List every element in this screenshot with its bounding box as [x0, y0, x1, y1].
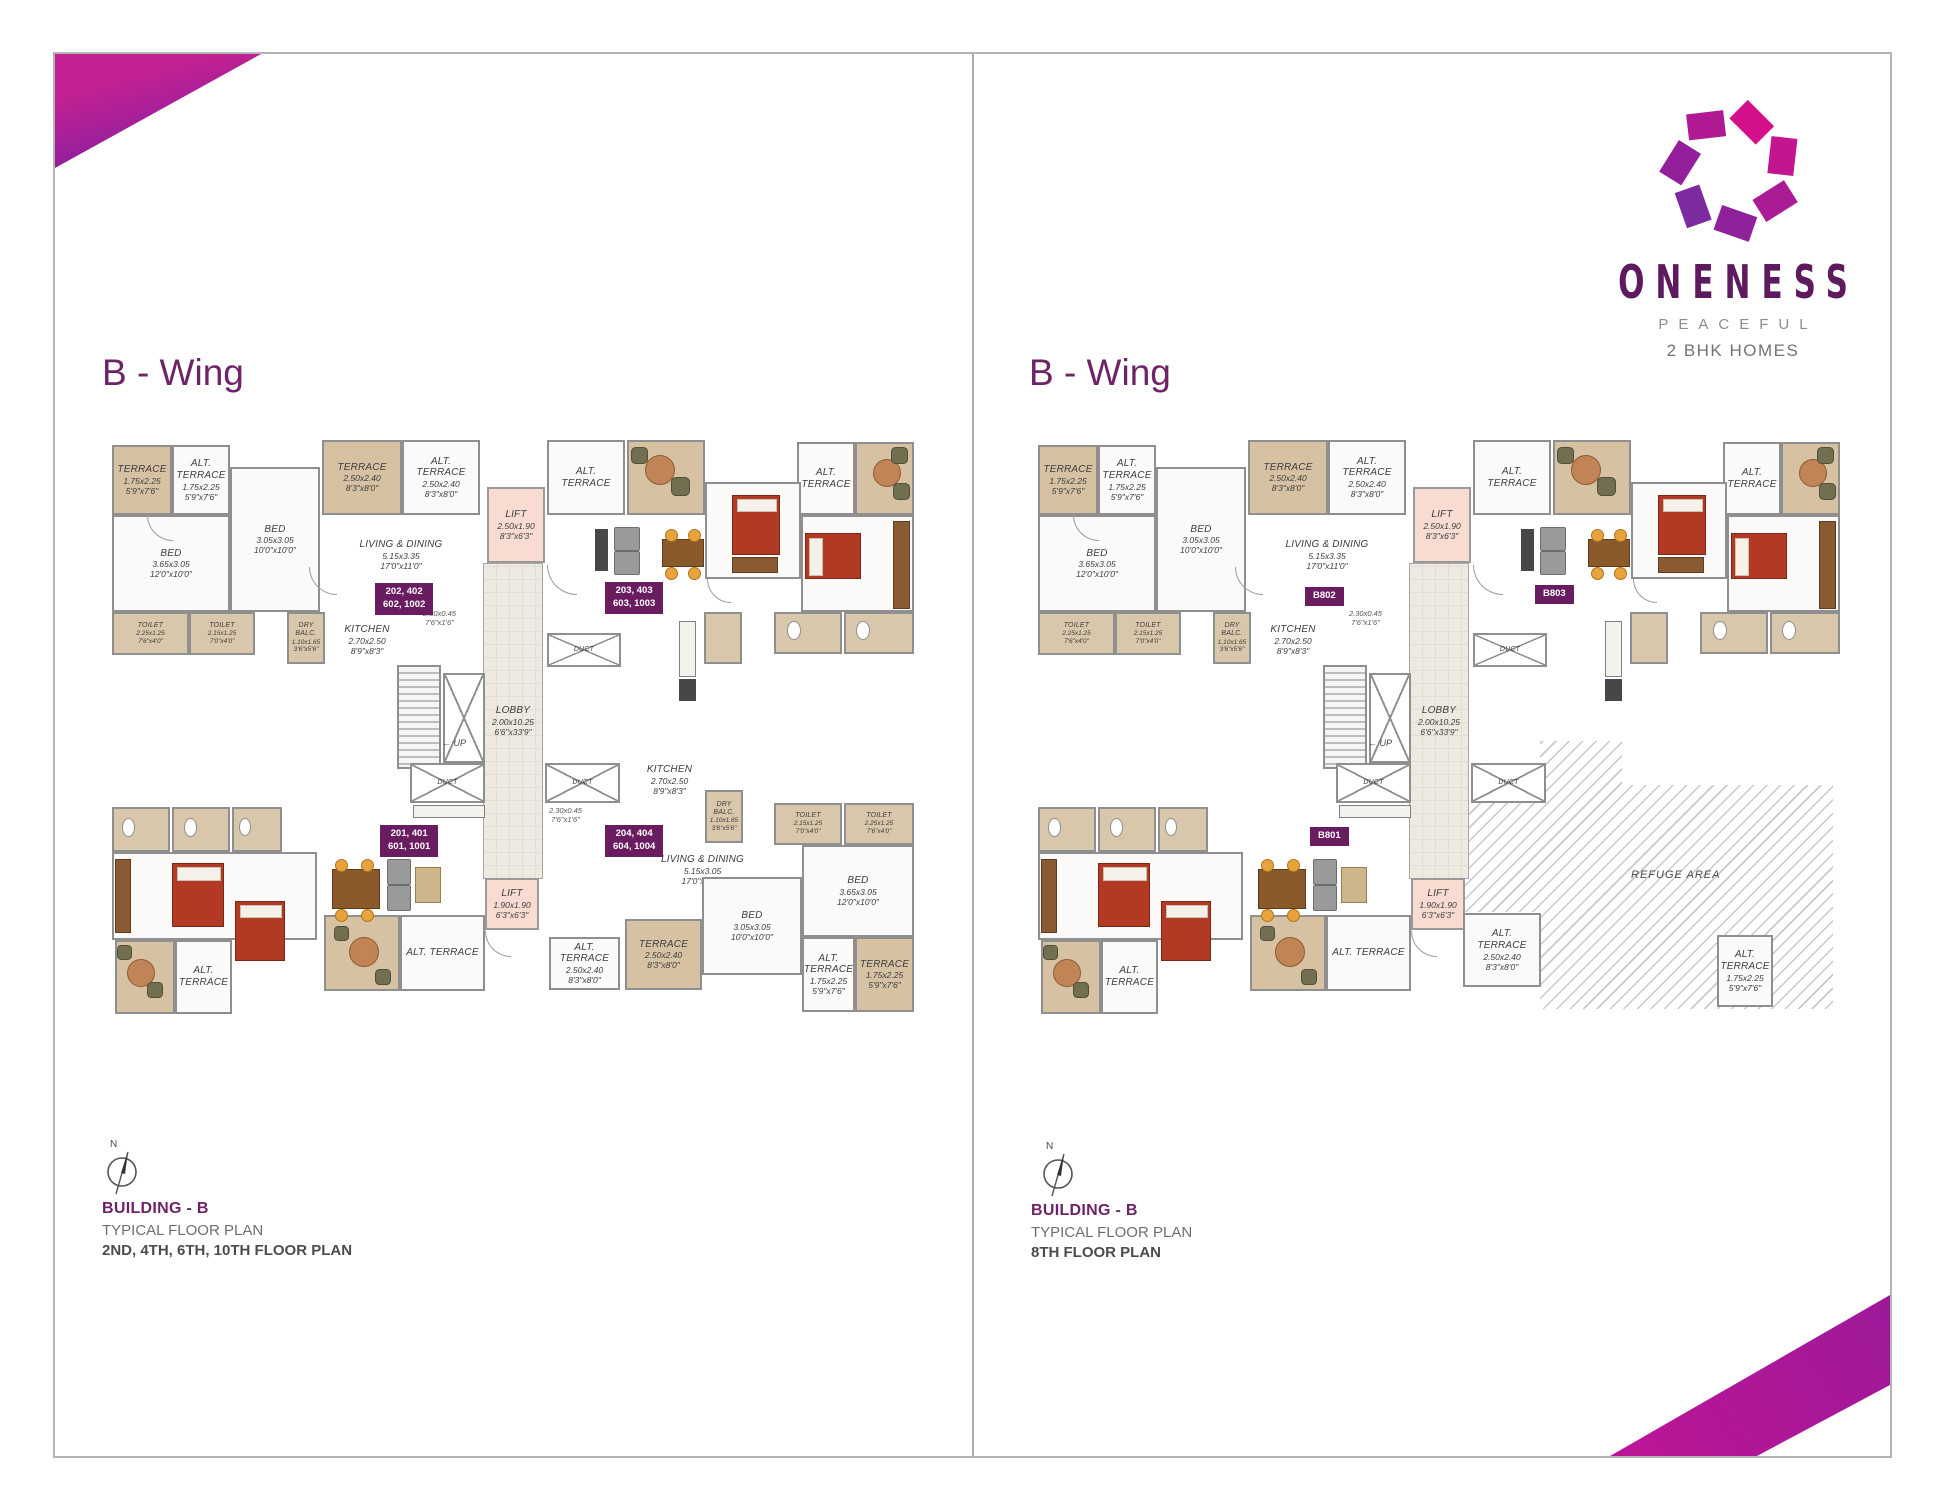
room-terrace: TERRACE1.75x2.255'9"x7'6": [1038, 445, 1098, 515]
room-duct: DUCT: [1473, 633, 1547, 667]
compass-icon: [101, 1142, 145, 1202]
chair-furniture: [334, 926, 349, 941]
plan-type: TYPICAL FLOOR PLAN: [1031, 1224, 1461, 1241]
unit-badge: 203, 403603, 1003: [605, 582, 663, 614]
north-indicator: N: [1037, 1144, 1081, 1204]
stool-furniture: [361, 859, 374, 872]
fix-furniture: [1048, 818, 1061, 837]
room-lobby: LOBBY2.00x10.256'6"x33'9": [1409, 563, 1469, 879]
bedv-furniture: [1658, 495, 1706, 555]
dtable-furniture: [1588, 539, 1630, 567]
bedh-furniture: [805, 533, 861, 579]
room-wet: [1700, 612, 1768, 654]
chair-furniture: [1260, 926, 1275, 941]
counter-furniture: [1605, 621, 1622, 677]
rtable-furniture: [1275, 937, 1305, 967]
stool-furniture: [1287, 909, 1300, 922]
room-toilet: TOILET2.15x1.257'0"x4'0": [189, 612, 255, 655]
stool-furniture: [1614, 567, 1627, 580]
chair-furniture: [631, 447, 648, 464]
room-terrace: TERRACE1.75x2.255'9"x7'6": [112, 445, 172, 515]
room-living-dining: LIVING & DINING5.15x3.3517'0"x11'0": [1246, 515, 1408, 595]
room-wet: [844, 612, 914, 654]
room-lobby: LOBBY2.00x10.256'6"x33'9": [483, 563, 543, 879]
room-wet: [774, 612, 842, 654]
room-wet: [704, 612, 742, 664]
bedv-furniture: [732, 495, 780, 555]
ward-furniture: [1658, 557, 1704, 573]
stool-furniture: [1591, 567, 1604, 580]
plan-type: TYPICAL FLOOR PLAN: [102, 1222, 532, 1239]
ctable-furniture: [415, 867, 441, 903]
chair-furniture: [1817, 447, 1834, 464]
up-stairs-label: ← UP: [1368, 738, 1392, 748]
room-xbox: [443, 673, 485, 763]
chair-furniture: [1819, 483, 1836, 500]
room-bed: BED3.05x3.0510'0"x10'0": [1156, 467, 1246, 612]
room-alt-terrace: ALT. TERRACE1.75x2.255'9"x7'6": [172, 445, 230, 515]
room-alt-terrace: ALT. TERRACE: [175, 940, 232, 1014]
room-alt-terrace: ALT. TERRACE2.50x2.408'3"x8'0": [402, 440, 480, 515]
chair-furniture: [117, 945, 132, 960]
room-dry-balc: DRY BALC.1.10x1.653'6"x5'6": [1213, 612, 1251, 664]
room-dry-balc: DRY BALC.1.10x1.653'6"x5'6": [705, 790, 743, 843]
stool-furniture: [1614, 529, 1627, 542]
room-alt-terrace: ALT. TERRACE1.75x2.255'9"x7'6": [1717, 935, 1773, 1007]
brand-name: ONENESS: [1573, 256, 1893, 310]
chair-furniture: [671, 477, 690, 496]
room-wet: [1038, 807, 1096, 852]
room-toilet: TOILET2.15x1.257'0"x4'0": [1115, 612, 1181, 655]
room-duct: DUCT: [1471, 763, 1546, 803]
sofa-furniture: [1313, 885, 1337, 911]
room-alt-terrace: ALT. TERRACE2.50x2.408'3"x8'0": [1463, 913, 1541, 987]
room-wet: [1098, 807, 1156, 852]
fix-furniture: [184, 818, 197, 837]
north-letter: N: [1046, 1141, 1053, 1152]
stool-furniture: [665, 567, 678, 580]
room-bed: BED3.05x3.0510'0"x10'0": [702, 877, 802, 975]
unit-badge: B801: [1310, 827, 1349, 846]
dimension-note: 2.30x0.457'6"x1'6": [1349, 609, 1382, 628]
chair-furniture: [147, 982, 163, 998]
room-alt-terrace: ALT. TERRACE: [797, 442, 855, 515]
room-xbox: [1369, 673, 1411, 763]
unit-badge: 204, 404604, 1004: [605, 825, 663, 857]
fix-furniture: [1713, 621, 1727, 640]
bedv-furniture: [1098, 863, 1150, 927]
caption-left: BUILDING - B TYPICAL FLOOR PLAN 2ND, 4TH…: [102, 1200, 532, 1259]
stool-furniture: [1287, 859, 1300, 872]
arc-furniture: [1473, 565, 1503, 595]
stool-furniture: [1261, 859, 1274, 872]
wardv-furniture: [893, 521, 910, 609]
refuge-area-label: REFUGE AREA: [1631, 869, 1720, 881]
chair-furniture: [1597, 477, 1616, 496]
room-wet: [1630, 612, 1668, 664]
fix-furniture: [239, 818, 251, 836]
room-wet: [1770, 612, 1840, 654]
building-name: BUILDING - B: [102, 1200, 532, 1218]
room-alt-terrace: ALT. TERRACE: [1473, 440, 1551, 515]
room-toilet: TOILET2.25x1.257'6"x4'0": [112, 612, 189, 655]
room-duct: DUCT: [1336, 763, 1411, 803]
dtable-furniture: [332, 869, 380, 909]
room-stairs: [397, 665, 441, 769]
chair-furniture: [1073, 982, 1089, 998]
unit-badge: 202, 402602, 1002: [375, 583, 433, 615]
room-bed: BED3.05x3.0510'0"x10'0": [230, 467, 320, 612]
room-terrace: TERRACE2.50x2.408'3"x8'0": [1248, 440, 1328, 515]
room-kitchen: KITCHEN2.70x2.508'9"x8'3": [627, 743, 712, 817]
unit-badge: B802: [1305, 587, 1344, 606]
dark-furniture: [595, 529, 608, 571]
room-terrace: TERRACE2.50x2.408'3"x8'0": [625, 919, 702, 990]
room-alt-terrace: ALT. TERRACE: [1101, 940, 1158, 1014]
fix-furniture: [1782, 621, 1796, 640]
ward-furniture: [732, 557, 778, 573]
building-name: BUILDING - B: [1031, 1202, 1461, 1220]
room-alt-terrace: ALT. TERRACE1.75x2.255'9"x7'6": [802, 937, 855, 1012]
arc-furniture: [707, 579, 731, 603]
dtable-furniture: [1258, 869, 1306, 909]
bedv-furniture: [235, 901, 285, 961]
sofa-furniture: [614, 551, 640, 575]
wing-title-right: B - Wing: [1029, 352, 1171, 394]
room-lift: LIFT2.50x1.908'3"x6'3": [1413, 487, 1471, 563]
stool-furniture: [1261, 909, 1274, 922]
brochure-sheet: ONENESS PEACEFUL 2 BHK HOMES B - Wing LO…: [53, 52, 1892, 1458]
dark-furniture: [1521, 529, 1534, 571]
counter-furniture: [413, 805, 485, 818]
caption-right: BUILDING - B TYPICAL FLOOR PLAN 8TH FLOO…: [1031, 1202, 1461, 1261]
room-lift: LIFT1.90x1.906'3"x6'3": [485, 878, 539, 930]
compass-icon: [1037, 1144, 1081, 1204]
room-lift: LIFT2.50x1.908'3"x6'3": [487, 487, 545, 563]
panel-divider: [972, 54, 974, 1456]
room-toilet: TOILET2.25x1.257'6"x4'0": [1038, 612, 1115, 655]
chair-furniture: [893, 483, 910, 500]
floor-plan-left: LOBBY2.00x10.256'6"x33'9"TERRACE1.75x2.2…: [87, 437, 927, 1037]
room-duct: DUCT: [547, 633, 621, 667]
room-toilet: TOILET2.25x1.257'6"x4'0": [844, 803, 914, 845]
unit-badge: 201, 401601, 1001: [380, 825, 438, 857]
room-wet: [172, 807, 230, 852]
dimension-note: 2.30x0.457'6"x1'6": [549, 806, 582, 825]
fix-furniture: [787, 621, 801, 640]
sofa-furniture: [1540, 527, 1566, 551]
stool-furniture: [665, 529, 678, 542]
room-dry-balc: DRY BALC.1.10x1.653'6"x5'6": [287, 612, 325, 664]
rtable-furniture: [349, 937, 379, 967]
wardv-furniture: [1041, 859, 1057, 933]
chair-furniture: [891, 447, 908, 464]
wing-title-left: B - Wing: [102, 352, 244, 394]
corner-decoration-topleft: [55, 54, 261, 168]
room-alt-terrace: ALT. TERRACE1.75x2.255'9"x7'6": [1098, 445, 1156, 515]
floor-list: 2ND, 4TH, 6TH, 10TH FLOOR PLAN: [102, 1242, 532, 1259]
counter-furniture: [679, 621, 696, 677]
brand-tagline: PEACEFUL: [1573, 316, 1893, 333]
room-lift: LIFT1.90x1.906'3"x6'3": [1411, 878, 1465, 930]
fix-furniture: [1165, 818, 1177, 836]
room-alt-terrace: ALT. TERRACE2.50x2.408'3"x8'0": [549, 937, 620, 990]
room-alt-terrace: ALT. TERRACE: [547, 440, 625, 515]
arc-furniture: [547, 565, 577, 595]
room-wet: [112, 807, 170, 852]
sofa-furniture: [614, 527, 640, 551]
dtable-furniture: [662, 539, 704, 567]
sofa-furniture: [1313, 859, 1337, 885]
room-alt-terrace: ALT. TERRACE: [1326, 915, 1411, 991]
dark-furniture: [679, 679, 696, 701]
sofa-furniture: [387, 885, 411, 911]
bedh-furniture: [1731, 533, 1787, 579]
ctable-furniture: [1341, 867, 1367, 903]
brand-subtitle: 2 BHK HOMES: [1573, 341, 1893, 361]
stool-furniture: [688, 529, 701, 542]
stool-furniture: [335, 909, 348, 922]
room-terrace: TERRACE1.75x2.255'9"x7'6": [855, 937, 914, 1012]
north-indicator: N: [101, 1142, 145, 1202]
room-toilet: TOILET2.15x1.257'0"x4'0": [774, 803, 842, 845]
counter-furniture: [1339, 805, 1411, 818]
arc-furniture: [485, 931, 511, 957]
room-duct: DUCT: [545, 763, 620, 803]
dark-furniture: [1605, 679, 1622, 701]
room-terrace: TERRACE2.50x2.408'3"x8'0": [322, 440, 402, 515]
up-stairs-label: ← UP: [442, 738, 466, 748]
bedv-furniture: [172, 863, 224, 927]
chair-furniture: [1301, 969, 1317, 985]
fix-furniture: [1110, 818, 1123, 837]
room-alt-terrace: ALT. TERRACE: [400, 915, 485, 991]
chair-furniture: [1557, 447, 1574, 464]
room-duct: DUCT: [410, 763, 485, 803]
stool-furniture: [335, 859, 348, 872]
stool-furniture: [688, 567, 701, 580]
sofa-furniture: [387, 859, 411, 885]
arc-furniture: [1411, 931, 1437, 957]
floor-list: 8TH FLOOR PLAN: [1031, 1244, 1461, 1261]
sofa-furniture: [1540, 551, 1566, 575]
chair-furniture: [375, 969, 391, 985]
wardv-furniture: [1819, 521, 1836, 609]
floor-plan-right: REFUGE AREALOBBY2.00x10.256'6"x33'9"TERR…: [1013, 437, 1853, 1037]
room-alt-terrace: ALT. TERRACE: [1723, 442, 1781, 515]
room-stairs: [1323, 665, 1367, 769]
unit-badge: B803: [1535, 585, 1574, 604]
wardv-furniture: [115, 859, 131, 933]
chair-furniture: [1043, 945, 1058, 960]
stool-furniture: [1591, 529, 1604, 542]
room-alt-terrace: ALT. TERRACE2.50x2.408'3"x8'0": [1328, 440, 1406, 515]
bedv-furniture: [1161, 901, 1211, 961]
north-letter: N: [110, 1139, 117, 1150]
logo-pinwheel-icon: [1653, 92, 1811, 250]
arc-furniture: [1633, 579, 1657, 603]
fix-furniture: [122, 818, 135, 837]
fix-furniture: [856, 621, 870, 640]
room-bed: BED3.65x3.0512'0"x10'0": [802, 845, 914, 937]
stool-furniture: [361, 909, 374, 922]
